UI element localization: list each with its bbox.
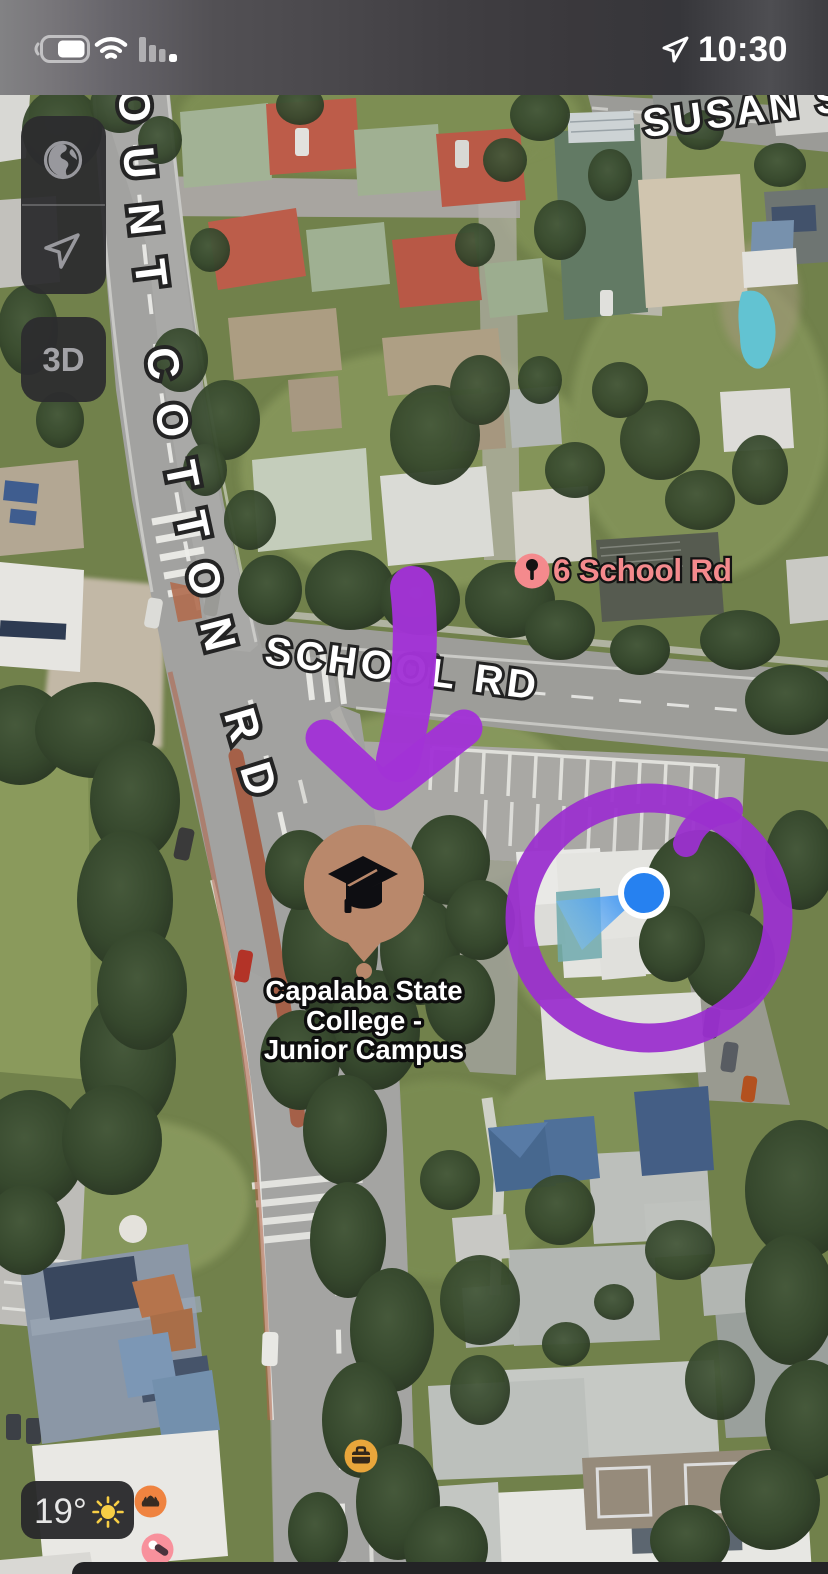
svg-text:6 School Rd: 6 School Rd [553, 552, 732, 588]
svg-text:Capalaba State: Capalaba State [265, 975, 462, 1006]
svg-text:Junior Campus: Junior Campus [264, 1034, 464, 1065]
svg-text:College -: College - [306, 1005, 422, 1036]
